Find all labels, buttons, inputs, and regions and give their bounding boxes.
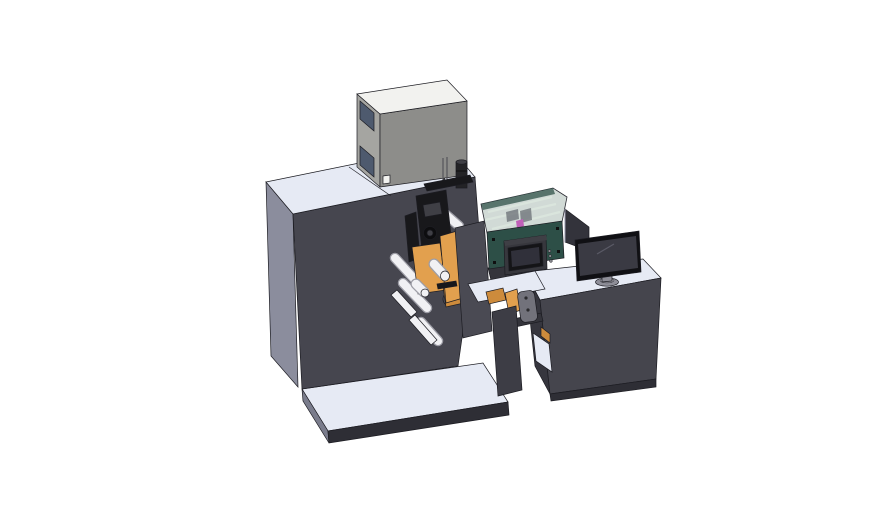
stub-roller-2-cap [421, 289, 429, 297]
hmi-button [549, 255, 552, 258]
panel-screw [557, 250, 560, 253]
printhead-gear-inner [427, 230, 433, 236]
bracket-hole [524, 296, 527, 299]
panel-screw [493, 261, 496, 264]
panel-screw [492, 238, 495, 241]
hood-box-front-face [380, 101, 467, 187]
cad-render-canvas [0, 0, 888, 522]
hmi-button [550, 260, 553, 263]
hood-latch-plate [383, 175, 390, 184]
machine-render [0, 0, 888, 522]
bracket-hole [526, 308, 529, 311]
hmi-button [548, 250, 551, 253]
stub-roller-1-cap [441, 271, 450, 281]
cylinder-knob-cap [456, 160, 467, 164]
panel-screw [556, 227, 559, 230]
printhead-inner-plate [423, 202, 442, 217]
